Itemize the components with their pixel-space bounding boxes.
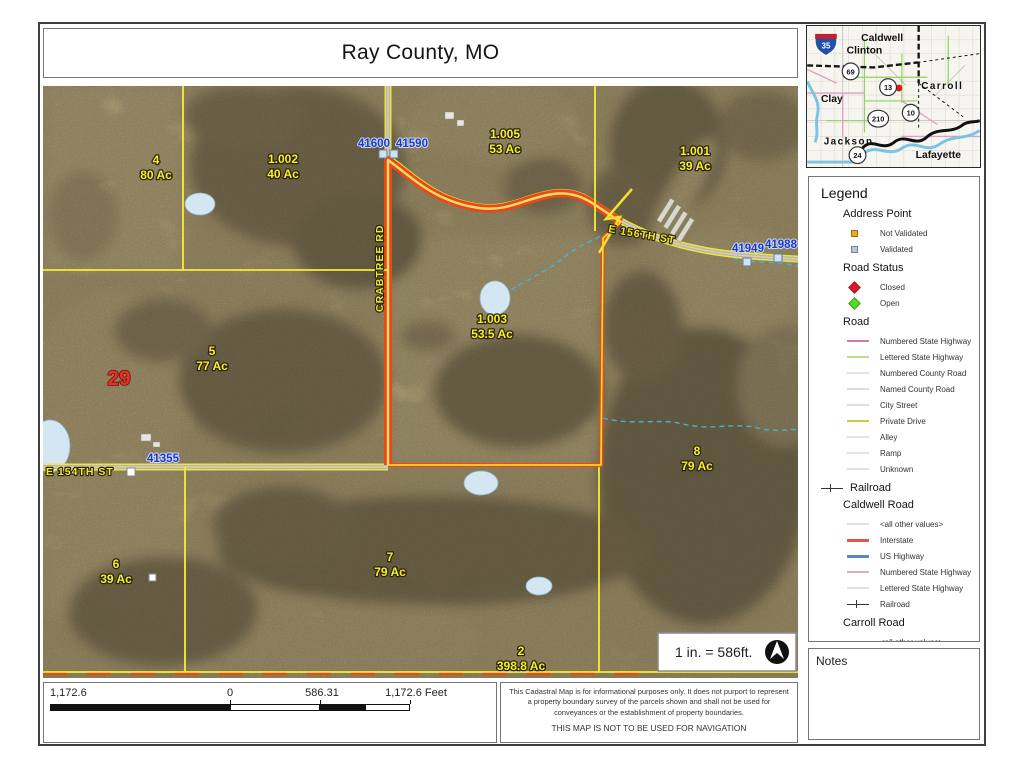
parcel-acreage-label: 398.8 Ac xyxy=(497,659,546,673)
legend-item: Alley xyxy=(847,429,977,445)
legend-swatch xyxy=(847,383,873,395)
swatch-square xyxy=(851,246,858,253)
parcel-number-label: 1.001 xyxy=(680,144,710,158)
county-label: Carroll xyxy=(921,81,963,92)
swatch-diamond xyxy=(848,297,861,310)
map-title-box: Ray County, MO xyxy=(43,28,798,78)
county-label: Lafayette xyxy=(916,150,962,161)
scalebar-zero-label: 0 xyxy=(227,687,233,699)
county-label: Jackson xyxy=(824,136,874,147)
swatch-line xyxy=(847,587,869,589)
legend-item: Numbered State Highway xyxy=(847,333,977,349)
legend-item-label: Ramp xyxy=(880,449,901,458)
svg-text:24: 24 xyxy=(853,151,862,160)
legend-swatch xyxy=(847,534,873,546)
svg-text:69: 69 xyxy=(846,67,854,76)
legend-swatch xyxy=(847,431,873,443)
disclaimer-box: This Cadastral Map is for informational … xyxy=(500,682,798,743)
legend-sections: Address PointNot ValidatedValidatedRoad … xyxy=(819,208,977,642)
svg-text:35: 35 xyxy=(822,42,831,51)
legend-item: Numbered State Highway xyxy=(847,564,977,580)
parcel-number-label: 1.002 xyxy=(268,152,298,166)
legend-item-label: Numbered State Highway xyxy=(880,568,971,577)
cadastral-map-page: Ray County, MO xyxy=(0,0,1024,768)
svg-text:210: 210 xyxy=(872,115,884,124)
legend-item: Numbered County Road xyxy=(847,365,977,381)
legend-item: Validated xyxy=(847,241,977,257)
legend-item: City Street xyxy=(847,397,977,413)
legend-item: Closed xyxy=(847,279,977,295)
legend-swatch xyxy=(847,351,873,363)
swatch-line xyxy=(847,340,869,342)
legend-item-label: <all other values> xyxy=(880,638,943,643)
swatch-line xyxy=(847,372,869,374)
parcel-number-label: 5 xyxy=(209,344,216,358)
inset-locator-map: 35 69 13 210 10 24 Caldwell Clinton Carr… xyxy=(806,25,981,168)
legend-item: Private Drive xyxy=(847,413,977,429)
swatch-line xyxy=(847,641,869,642)
section-number-label: 29 xyxy=(107,367,130,390)
legend-item: Open xyxy=(847,295,977,311)
map-canvas: 480 Ac1.00240 Ac1.00553 Ac1.00139 Ac1.00… xyxy=(43,86,798,678)
road-name-label: CRABTREE RD xyxy=(374,225,386,312)
disclaimer-text: This Cadastral Map is for informational … xyxy=(507,687,791,718)
legend-section-heading: Address Point xyxy=(843,208,977,220)
legend-swatch xyxy=(847,415,873,427)
legend-item: Not Validated xyxy=(847,225,977,241)
svg-text:10: 10 xyxy=(907,109,915,118)
swatch-line xyxy=(847,388,869,390)
scale-note-box: 1 in. = 586ft. xyxy=(658,633,796,671)
legend-item-label: Alley xyxy=(880,433,897,442)
legend-item: Lettered State Highway xyxy=(847,349,977,365)
legend-item: <all other values> xyxy=(847,634,977,642)
parcel-number-label: 1.003 xyxy=(477,312,507,326)
legend-swatch xyxy=(847,582,873,594)
legend-section-railroad: Railroad xyxy=(821,482,977,494)
swatch-diamond xyxy=(848,281,861,294)
legend-swatch xyxy=(847,281,873,293)
legend-swatch xyxy=(847,335,873,347)
address-point-label: 41590 xyxy=(396,138,428,150)
swatch-line xyxy=(847,523,869,525)
scalebar-segment xyxy=(320,704,365,711)
legend-swatch xyxy=(847,227,873,239)
swatch-line xyxy=(847,404,869,406)
legend-item: Named County Road xyxy=(847,381,977,397)
page-title: Ray County, MO xyxy=(342,41,500,65)
legend-item: Railroad xyxy=(847,596,977,612)
legend-item-label: Open xyxy=(880,299,900,308)
swatch-line xyxy=(847,468,869,470)
legend-swatch xyxy=(847,399,873,411)
parcel-acreage-label: 79 Ac xyxy=(374,565,406,579)
county-label: Clay xyxy=(821,94,843,105)
svg-text:13: 13 xyxy=(884,83,892,92)
parcel-acreage-label: 80 Ac xyxy=(140,168,172,182)
legend-swatch xyxy=(847,598,873,610)
legend-item: US Highway xyxy=(847,548,977,564)
parcel-acreage-label: 39 Ac xyxy=(679,159,711,173)
legend-panel: Legend Address PointNot ValidatedValidat… xyxy=(808,176,980,642)
legend-swatch xyxy=(847,636,873,642)
scalebar-right-label: 1,172.6 Feet xyxy=(385,687,447,699)
swatch-line xyxy=(847,555,869,558)
parcel-number-label: 7 xyxy=(387,550,394,564)
legend-swatch xyxy=(847,243,873,255)
legend-item-label: City Street xyxy=(880,401,917,410)
legend-item: Unknown xyxy=(847,461,977,477)
legend-item-label: Lettered State Highway xyxy=(880,584,963,593)
legend-item-label: Lettered State Highway xyxy=(880,353,963,362)
legend-item: Interstate xyxy=(847,532,977,548)
scalebar: 1,172.6 0 586.31 1,172.6 Feet xyxy=(43,682,497,743)
legend-item: Lettered State Highway xyxy=(847,580,977,596)
north-arrow-icon xyxy=(765,640,789,664)
swatch-line xyxy=(847,539,869,542)
parcel-number-label: 1.005 xyxy=(490,127,520,141)
legend-section-heading: Railroad xyxy=(850,482,891,494)
scalebar-mid-label: 586.31 xyxy=(305,687,339,699)
legend-item-label: Unknown xyxy=(880,465,913,474)
legend-swatch xyxy=(847,367,873,379)
county-label: Caldwell xyxy=(861,33,903,44)
address-point-label: 41949 xyxy=(732,243,764,255)
road-name-label: E 154TH ST xyxy=(46,466,114,478)
swatch-line xyxy=(847,420,869,422)
legend-swatch xyxy=(847,550,873,562)
parcel-acreage-label: 53.5 Ac xyxy=(471,327,513,341)
navigation-warning-text: THIS MAP IS NOT TO BE USED FOR NAVIGATIO… xyxy=(507,723,791,733)
legend-item: <all other values> xyxy=(847,516,977,532)
aerial-map: 480 Ac1.00240 Ac1.00553 Ac1.00139 Ac1.00… xyxy=(43,86,798,678)
scalebar-segment xyxy=(50,704,230,711)
legend-item-label: Private Drive xyxy=(880,417,926,426)
swatch-line xyxy=(847,436,869,438)
legend-section-heading: Road xyxy=(843,316,977,328)
swatch-line xyxy=(847,356,869,358)
legend-item-label: Not Validated xyxy=(880,229,927,238)
scalebar-segment xyxy=(230,704,320,711)
swatch-railroad xyxy=(847,599,869,609)
legend-item-label: Closed xyxy=(880,283,905,292)
swatch-line xyxy=(847,571,869,573)
railroad-symbol xyxy=(821,483,843,493)
address-point-label: 41600 xyxy=(358,138,390,150)
legend-item-label: Named County Road xyxy=(880,385,955,394)
parcel-number-label: 4 xyxy=(153,153,160,167)
parcel-acreage-label: 53 Ac xyxy=(489,142,521,156)
scalebar-tick xyxy=(410,700,411,704)
legend-section-heading: Road Status xyxy=(843,262,977,274)
legend-item-label: Railroad xyxy=(880,600,910,609)
legend-item-label: Interstate xyxy=(880,536,913,545)
scalebar-left-label: 1,172.6 xyxy=(50,687,87,699)
scale-note-text: 1 in. = 586ft. xyxy=(675,644,752,660)
parcel-acreage-label: 40 Ac xyxy=(267,167,299,181)
legend-section-heading: Caldwell Road xyxy=(843,499,977,511)
address-point-label: 41988 xyxy=(765,239,798,251)
scalebar-segment xyxy=(365,704,410,711)
legend-swatch xyxy=(847,566,873,578)
legend-swatch xyxy=(847,297,873,309)
legend-swatch xyxy=(847,463,873,475)
swatch-square xyxy=(851,230,858,237)
legend-section-heading: Carroll Road xyxy=(843,617,977,629)
legend-item-label: Numbered County Road xyxy=(880,369,966,378)
legend-item-label: Validated xyxy=(880,245,913,254)
parcel-number-label: 2 xyxy=(518,644,525,658)
legend-title: Legend xyxy=(821,185,977,201)
county-label: Clinton xyxy=(847,46,883,57)
notes-panel: Notes xyxy=(808,648,980,740)
parcel-number-label: 6 xyxy=(113,557,120,571)
legend-item-label: <all other values> xyxy=(880,520,943,529)
parcel-acreage-label: 77 Ac xyxy=(196,359,228,373)
parcel-acreage-label: 39 Ac xyxy=(100,572,132,586)
legend-item-label: US Highway xyxy=(880,552,924,561)
parcel-acreage-label: 79 Ac xyxy=(681,459,713,473)
legend-swatch xyxy=(847,447,873,459)
swatch-line xyxy=(847,452,869,454)
notes-heading: Notes xyxy=(816,654,847,668)
parcel-number-label: 8 xyxy=(694,444,701,458)
legend-item: Ramp xyxy=(847,445,977,461)
legend-item-label: Numbered State Highway xyxy=(880,337,971,346)
legend-swatch xyxy=(847,518,873,530)
address-point-label: 41355 xyxy=(147,453,180,465)
